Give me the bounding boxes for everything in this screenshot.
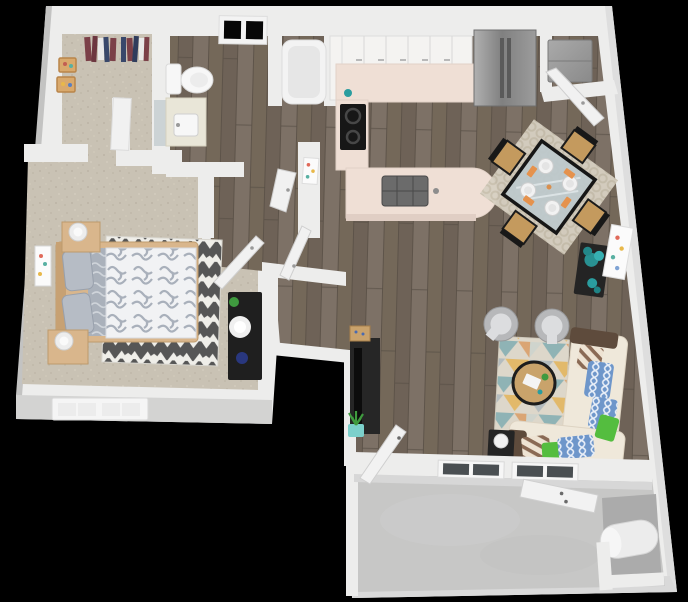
bedroom-east-wall xyxy=(264,268,278,350)
bedroom-north-wall-a xyxy=(24,144,88,162)
patio-floor-shade xyxy=(480,535,600,575)
bedroom-window xyxy=(52,398,148,420)
door-knob-icon xyxy=(397,436,401,440)
vanity-sink xyxy=(166,98,206,146)
decor-icon xyxy=(236,352,248,364)
duvet xyxy=(106,248,196,338)
door-knob-icon xyxy=(286,188,290,192)
vanity-mirror xyxy=(154,100,166,146)
barrel-chair xyxy=(535,309,569,344)
french-window xyxy=(512,462,578,481)
bedroom-door-wall xyxy=(198,176,214,238)
bath-window xyxy=(219,16,267,45)
range-cooktop xyxy=(340,104,366,150)
plant-icon xyxy=(542,374,549,381)
plant-icon xyxy=(229,297,239,307)
speaker-box xyxy=(350,326,370,341)
floor-plant xyxy=(348,411,364,437)
tub-west-wall xyxy=(268,34,282,106)
french-window xyxy=(438,460,504,479)
refrigerator xyxy=(474,30,536,106)
faucet-icon xyxy=(176,123,180,127)
closet-door-leaf xyxy=(111,98,132,151)
north-counter xyxy=(336,64,474,102)
bath-south-wall xyxy=(166,162,244,177)
kettle-icon xyxy=(344,89,352,97)
door-knob-icon xyxy=(581,101,585,105)
coffee-table xyxy=(513,362,555,404)
hall-kitchen-wall xyxy=(298,142,320,238)
bed xyxy=(56,242,198,342)
nightstand-south xyxy=(48,330,88,364)
nightstand-north xyxy=(62,222,100,252)
lamp-icon xyxy=(494,434,508,448)
patio-west-wall xyxy=(346,462,358,596)
pillow xyxy=(62,249,94,292)
tv-stand xyxy=(350,326,380,434)
door-knob-icon xyxy=(292,264,296,268)
blue-pillow xyxy=(557,434,595,460)
faucet-icon xyxy=(433,188,439,194)
blue-pillow xyxy=(584,360,615,399)
patio-floor-highlight xyxy=(380,494,520,546)
floorplan-render xyxy=(0,0,688,602)
bedroom-wall-art xyxy=(35,246,51,286)
hall-wall-art xyxy=(302,157,319,184)
planter-pot xyxy=(348,424,364,437)
floorplan-stage xyxy=(0,0,688,602)
dresser xyxy=(228,292,262,380)
bathtub xyxy=(282,40,326,104)
pillow xyxy=(61,292,94,336)
door-knob-icon xyxy=(250,246,254,250)
kitchen-island xyxy=(346,168,497,221)
